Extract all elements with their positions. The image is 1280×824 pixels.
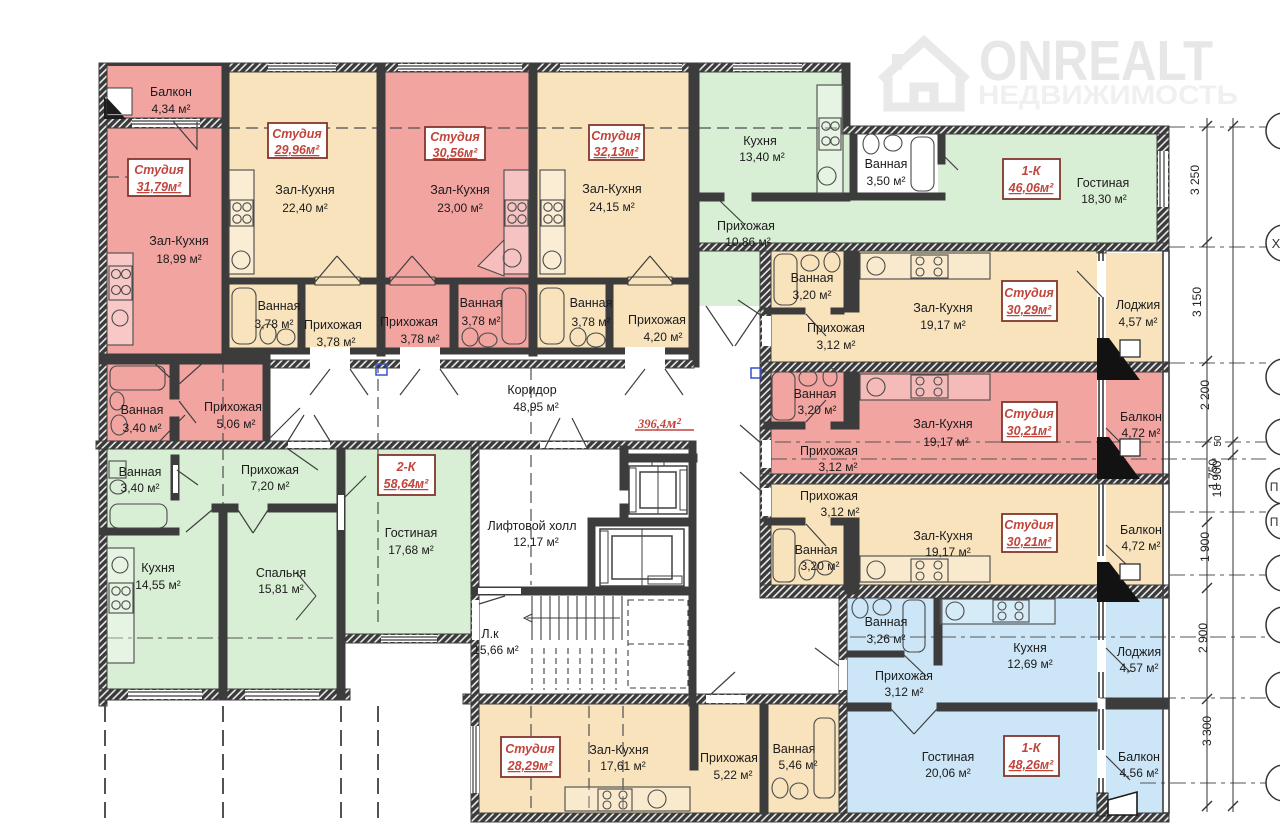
svg-text:3,20 м²: 3,20 м² [801, 559, 840, 573]
svg-text:17,68 м²: 17,68 м² [388, 543, 434, 557]
svg-text:3,12 м²: 3,12 м² [817, 338, 856, 352]
svg-text:П: П [1270, 480, 1279, 494]
svg-text:Зал-Кухня: Зал-Кухня [275, 183, 334, 197]
svg-text:58,64м²: 58,64м² [384, 477, 430, 491]
svg-text:П: П [1270, 515, 1279, 529]
svg-text:Л.к: Л.к [481, 627, 499, 641]
svg-text:28,29м²: 28,29м² [507, 759, 554, 773]
svg-text:30,56м²: 30,56м² [433, 146, 479, 160]
svg-text:10,86 м²: 10,86 м² [725, 235, 771, 249]
svg-text:3,12 м²: 3,12 м² [821, 505, 860, 519]
svg-text:Ванная: Ванная [795, 543, 838, 557]
svg-text:19,17 м²: 19,17 м² [920, 318, 966, 332]
svg-text:13,40 м²: 13,40 м² [739, 150, 785, 164]
svg-text:4,56 м²: 4,56 м² [1120, 766, 1159, 780]
svg-text:Прихожая: Прихожая [204, 400, 262, 414]
svg-text:5,46 м²: 5,46 м² [779, 758, 818, 772]
svg-text:22,40 м²: 22,40 м² [282, 201, 328, 215]
svg-text:Коридор: Коридор [507, 383, 556, 397]
svg-text:Студия: Студия [591, 129, 641, 143]
svg-text:3,78 м²: 3,78 м² [572, 315, 611, 329]
svg-text:Ванная: Ванная [258, 299, 301, 313]
svg-text:Прихожая: Прихожая [628, 313, 686, 327]
svg-text:19,17 м²: 19,17 м² [923, 435, 969, 449]
svg-text:Студия: Студия [430, 130, 480, 144]
svg-text:Прихожая: Прихожая [800, 444, 858, 458]
svg-text:12,17 м²: 12,17 м² [513, 535, 559, 549]
svg-text:Ванная: Ванная [119, 465, 162, 479]
svg-text:18,30 м²: 18,30 м² [1081, 192, 1127, 206]
svg-text:29,96м²: 29,96м² [274, 143, 321, 157]
svg-text:Балкон: Балкон [150, 85, 192, 99]
svg-text:Зал-Кухня: Зал-Кухня [589, 743, 648, 757]
svg-text:Прихожая: Прихожая [807, 321, 865, 335]
svg-text:30,29м²: 30,29м² [1007, 303, 1053, 317]
svg-text:Ванная: Ванная [865, 157, 908, 171]
svg-text:Балкон: Балкон [1118, 750, 1160, 764]
svg-text:Прихожая: Прихожая [241, 463, 299, 477]
svg-text:20,06 м²: 20,06 м² [925, 766, 971, 780]
svg-text:Лифтовой холл: Лифтовой холл [487, 519, 576, 533]
svg-text:Прихожая: Прихожая [800, 489, 858, 503]
svg-text:4,34 м²: 4,34 м² [152, 102, 191, 116]
svg-text:Ванная: Ванная [794, 387, 837, 401]
svg-text:Зал-Кухня: Зал-Кухня [913, 529, 972, 543]
svg-text:5,06 м²: 5,06 м² [217, 417, 256, 431]
svg-text:32,13м²: 32,13м² [594, 145, 640, 159]
svg-text:1-К: 1-К [1022, 741, 1042, 755]
svg-text:17,61 м²: 17,61 м² [600, 759, 646, 773]
svg-text:Прихожая: Прихожая [717, 219, 775, 233]
svg-text:3,20 м²: 3,20 м² [798, 403, 837, 417]
svg-text:46,06м²: 46,06м² [1008, 181, 1055, 195]
svg-text:Зал-Кухня: Зал-Кухня [582, 182, 641, 196]
svg-text:Балкон: Балкон [1120, 410, 1162, 424]
svg-text:Студия: Студия [272, 127, 322, 141]
svg-text:Гостиная: Гостиная [1077, 176, 1129, 190]
svg-text:3,20 м²: 3,20 м² [793, 288, 832, 302]
svg-text:48,95 м²: 48,95 м² [513, 400, 559, 414]
svg-text:2 200: 2 200 [1198, 380, 1212, 410]
svg-text:18,99 м²: 18,99 м² [156, 252, 202, 266]
svg-text:18 900: 18 900 [1210, 460, 1224, 497]
svg-text:50: 50 [1213, 435, 1224, 447]
svg-text:Ванная: Ванная [791, 271, 834, 285]
svg-text:3,26 м²: 3,26 м² [867, 632, 906, 646]
svg-text:3,40 м²: 3,40 м² [121, 481, 160, 495]
svg-text:Х: Х [1272, 236, 1280, 251]
svg-text:Ванная: Ванная [865, 615, 908, 629]
svg-text:Ванная: Ванная [460, 296, 503, 310]
svg-text:2-К: 2-К [396, 460, 417, 474]
svg-text:Прихожая: Прихожая [700, 751, 758, 765]
svg-text:Гостиная: Гостиная [922, 750, 974, 764]
svg-text:Зал-Кухня: Зал-Кухня [149, 234, 208, 248]
svg-text:4,57 м²: 4,57 м² [1120, 661, 1159, 675]
svg-text:2 900: 2 900 [1196, 623, 1210, 653]
svg-text:3 250: 3 250 [1188, 165, 1202, 195]
svg-text:7,20 м²: 7,20 м² [251, 479, 290, 493]
svg-text:1-К: 1-К [1022, 164, 1042, 178]
svg-text:15,66 м²: 15,66 м² [473, 643, 519, 657]
svg-text:3,12 м²: 3,12 м² [819, 460, 858, 474]
svg-text:Кухня: Кухня [1013, 641, 1046, 655]
svg-text:Студия: Студия [1004, 407, 1054, 421]
svg-text:3,78 м²: 3,78 м² [317, 335, 356, 349]
svg-text:Студия: Студия [134, 163, 184, 177]
svg-text:Зал-Кухня: Зал-Кухня [913, 301, 972, 315]
svg-text:Зал-Кухня: Зал-Кухня [913, 417, 972, 431]
svg-text:Ванная: Ванная [121, 403, 164, 417]
svg-text:24,15 м²: 24,15 м² [589, 200, 635, 214]
svg-text:3,78 м²: 3,78 м² [401, 332, 440, 346]
svg-text:Кухня: Кухня [743, 134, 776, 148]
svg-text:3,78 м²: 3,78 м² [462, 314, 501, 328]
svg-text:Кухня: Кухня [141, 561, 174, 575]
svg-text:Лоджия: Лоджия [1116, 298, 1160, 312]
svg-text:4,57 м²: 4,57 м² [1119, 315, 1158, 329]
svg-text:Спальня: Спальня [256, 566, 306, 580]
svg-text:14,55 м²: 14,55 м² [135, 578, 181, 592]
svg-text:19,17 м²: 19,17 м² [925, 545, 971, 559]
svg-text:3,78 м²: 3,78 м² [255, 317, 294, 331]
svg-text:Студия: Студия [505, 742, 555, 756]
svg-text:5,22 м²: 5,22 м² [714, 768, 753, 782]
svg-text:3 300: 3 300 [1200, 716, 1214, 746]
svg-text:4,72 м²: 4,72 м² [1122, 539, 1161, 553]
svg-text:4,72 м²: 4,72 м² [1122, 426, 1161, 440]
svg-text:3 150: 3 150 [1190, 287, 1204, 317]
svg-text:Лоджия: Лоджия [1117, 645, 1161, 659]
svg-text:1 900: 1 900 [1198, 532, 1212, 562]
svg-text:31,79м²: 31,79м² [137, 180, 183, 194]
svg-text:4,20 м²: 4,20 м² [644, 330, 683, 344]
svg-text:НЕДВИЖИМОСТЬ: НЕДВИЖИМОСТЬ [978, 80, 1238, 110]
svg-text:Студия: Студия [1004, 286, 1054, 300]
svg-text:Прихожая: Прихожая [380, 315, 438, 329]
svg-text:15,81 м²: 15,81 м² [258, 582, 304, 596]
svg-text:Балкон: Балкон [1120, 523, 1162, 537]
svg-text:Прихожая: Прихожая [304, 318, 362, 332]
svg-text:3,50 м²: 3,50 м² [867, 174, 906, 188]
svg-text:23,00 м²: 23,00 м² [437, 201, 483, 215]
svg-text:3,12 м²: 3,12 м² [885, 685, 924, 699]
svg-text:Ванная: Ванная [570, 296, 613, 310]
svg-text:30,21м²: 30,21м² [1007, 535, 1053, 549]
svg-text:3,40 м²: 3,40 м² [123, 421, 162, 435]
svg-text:Гостиная: Гостиная [385, 526, 437, 540]
svg-text:12,69 м²: 12,69 м² [1007, 657, 1053, 671]
svg-text:Зал-Кухня: Зал-Кухня [430, 183, 489, 197]
svg-text:30,21м²: 30,21м² [1007, 424, 1053, 438]
svg-text:Прихожая: Прихожая [875, 669, 933, 683]
svg-text:Ванная: Ванная [773, 742, 816, 756]
svg-text:Студия: Студия [1004, 518, 1054, 532]
svg-text:48,26м²: 48,26м² [1008, 758, 1055, 772]
